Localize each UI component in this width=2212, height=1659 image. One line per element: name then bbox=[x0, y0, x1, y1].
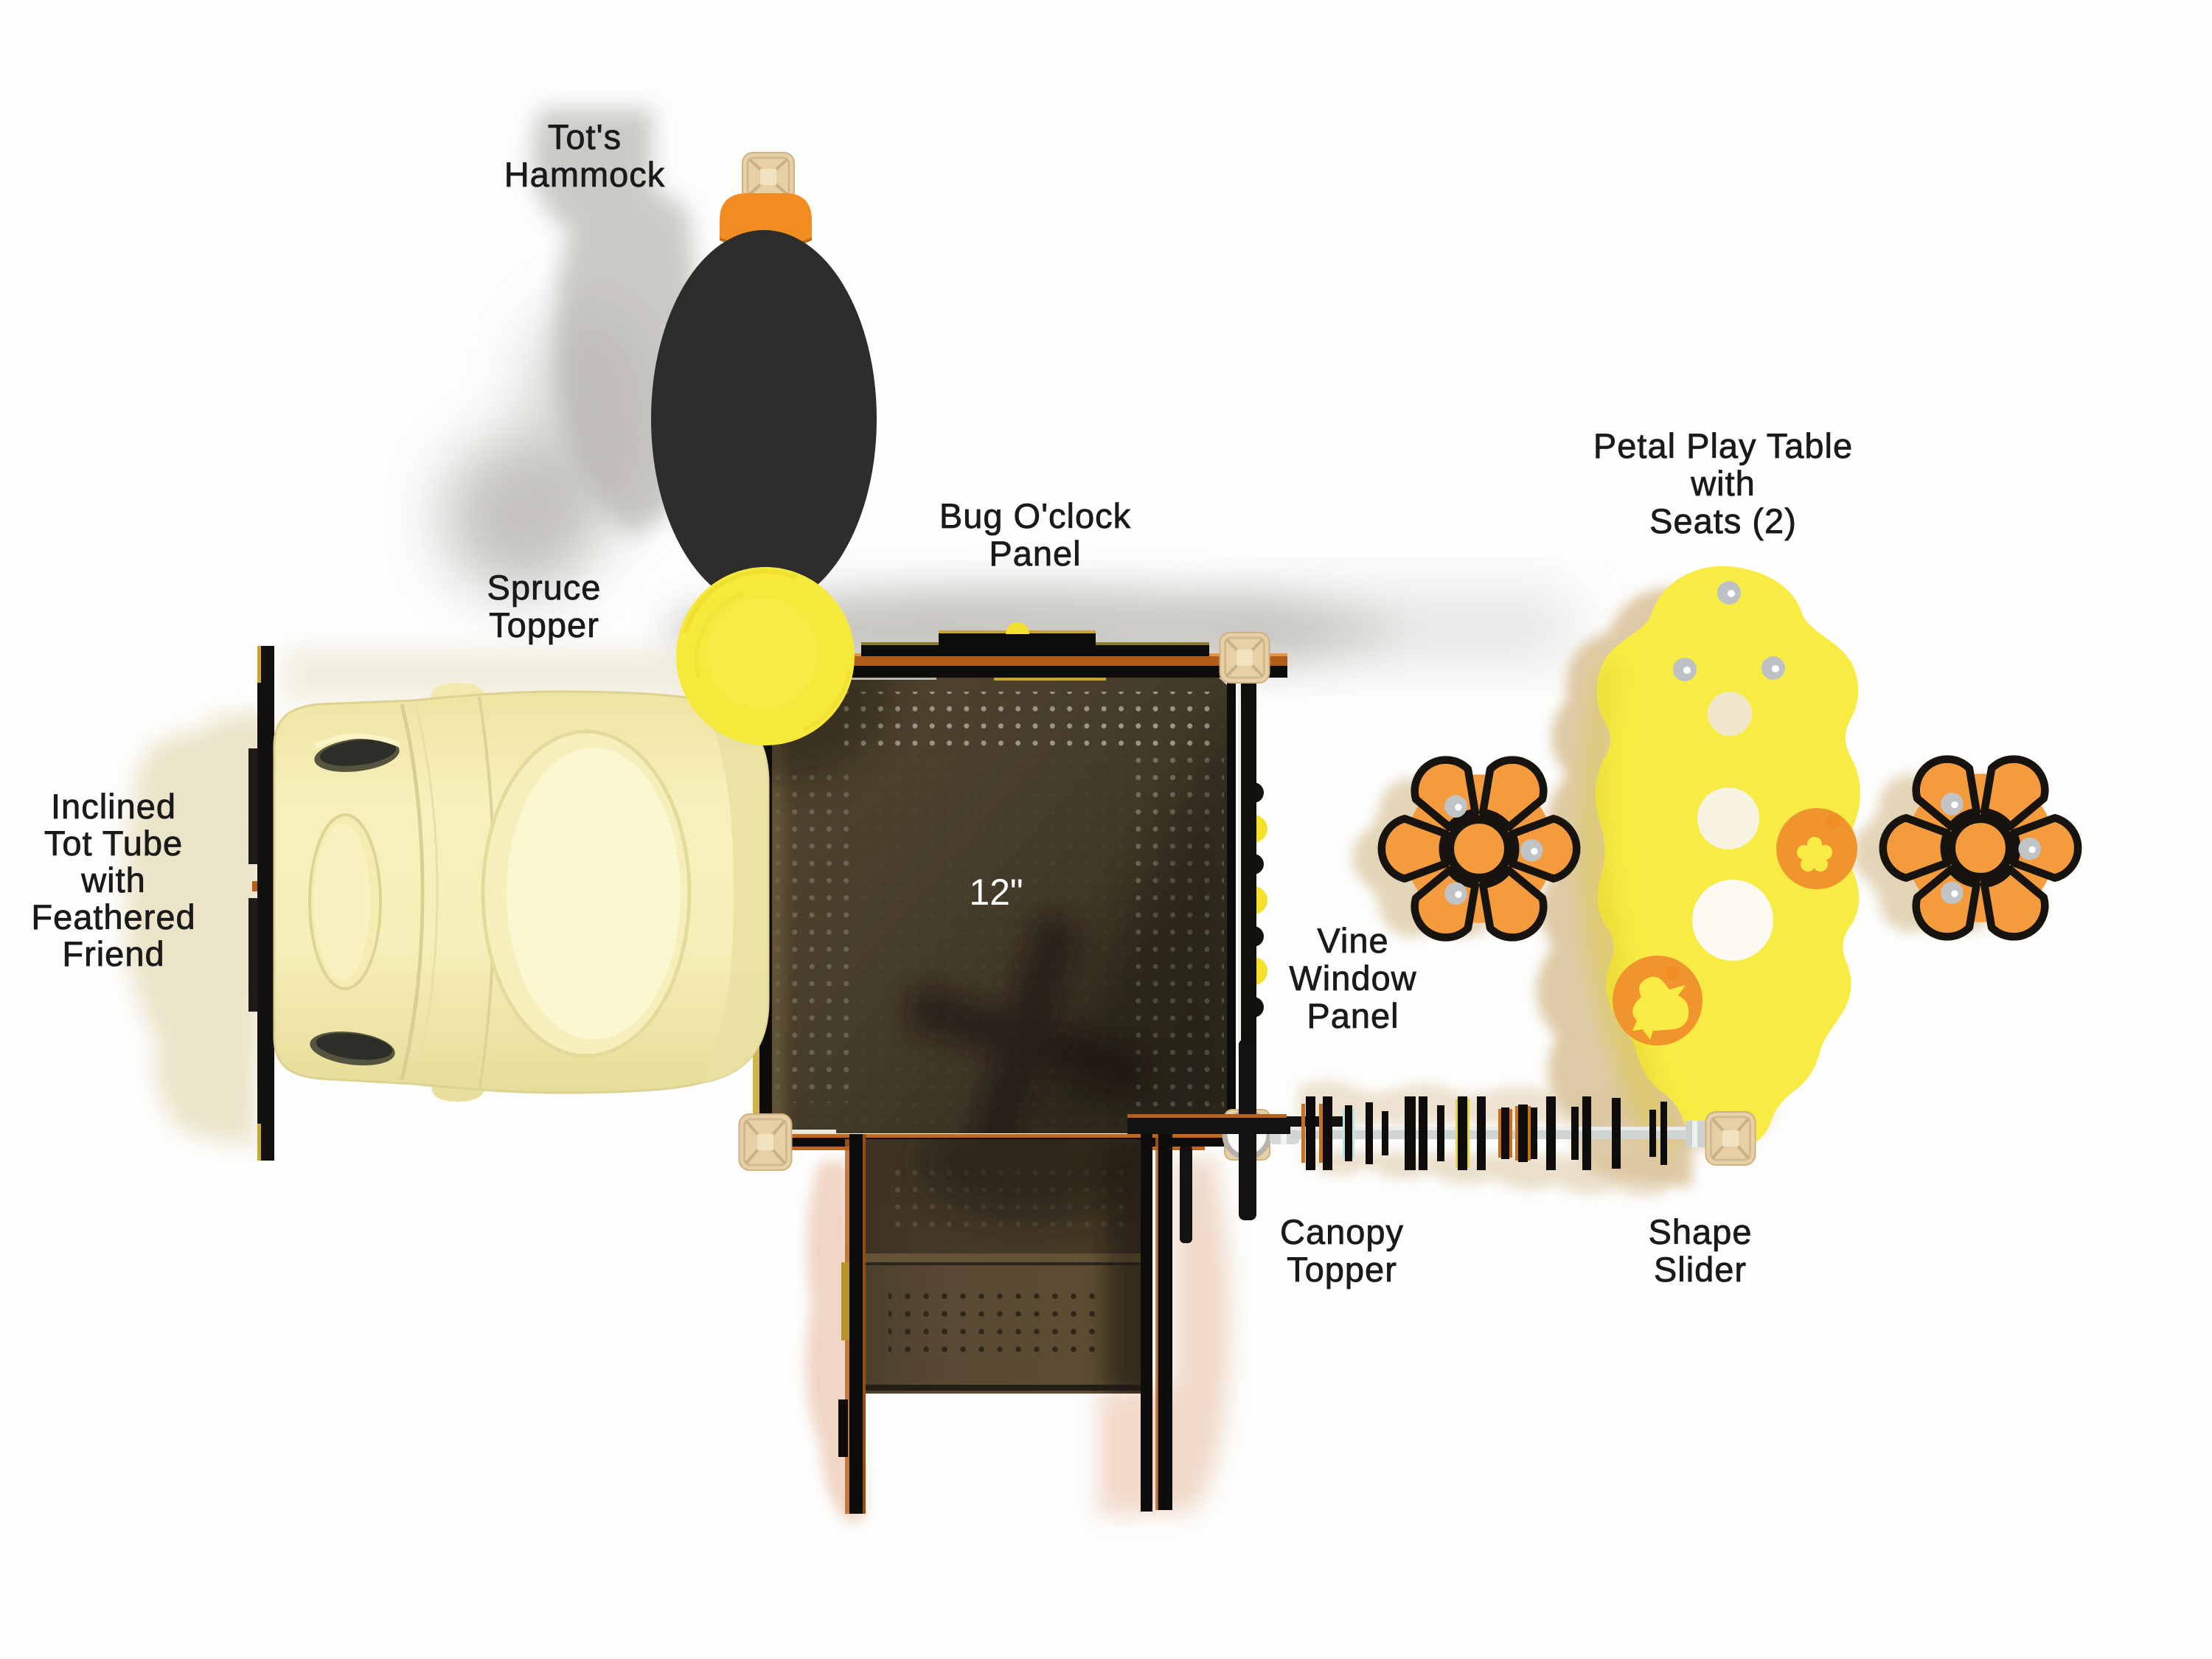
svg-text:Spruce: Spruce bbox=[487, 568, 602, 607]
svg-text:Topper: Topper bbox=[489, 605, 599, 644]
svg-text:Vine: Vine bbox=[1317, 921, 1388, 960]
svg-text:Tot's: Tot's bbox=[548, 117, 622, 156]
svg-text:Friend: Friend bbox=[62, 934, 164, 973]
svg-text:Tot Tube: Tot Tube bbox=[44, 824, 183, 863]
svg-text:Petal Play Table: Petal Play Table bbox=[1593, 426, 1853, 465]
svg-text:Feathered: Feathered bbox=[31, 897, 195, 936]
svg-text:Panel: Panel bbox=[1307, 996, 1399, 1035]
svg-text:Bug O'clock: Bug O'clock bbox=[939, 496, 1131, 535]
svg-text:Canopy: Canopy bbox=[1280, 1212, 1404, 1251]
svg-text:Window: Window bbox=[1289, 959, 1416, 998]
svg-text:Shape: Shape bbox=[1649, 1212, 1753, 1251]
svg-text:12": 12" bbox=[969, 872, 1023, 913]
svg-text:Hammock: Hammock bbox=[504, 155, 666, 194]
svg-text:Inclined: Inclined bbox=[51, 787, 176, 826]
svg-text:Panel: Panel bbox=[989, 534, 1081, 573]
svg-text:Seats (2): Seats (2) bbox=[1649, 501, 1797, 540]
svg-text:with: with bbox=[1690, 464, 1756, 503]
svg-text:with: with bbox=[80, 860, 146, 900]
svg-text:Slider: Slider bbox=[1654, 1250, 1747, 1289]
svg-text:Topper: Topper bbox=[1287, 1250, 1397, 1289]
